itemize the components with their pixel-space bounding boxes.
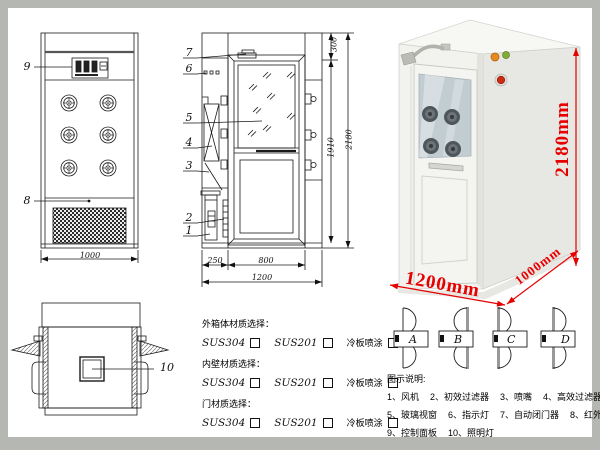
material-group-title: 外箱体材质选择： (202, 317, 412, 330)
legend-item: 7、自动闭门器 (500, 408, 559, 421)
legend: 图示说明: 1、风机 2、初效过滤器 3、喷嘴 4、高效过滤器 5、玻璃视窗 6… (387, 372, 600, 439)
material-option-label: 冷板喷涂 (347, 416, 383, 429)
photo-dim-height: 2180mm (552, 89, 574, 189)
legend-item: 3、喷嘴 (500, 390, 532, 403)
callout-9: 9 (20, 60, 34, 73)
checkbox (323, 418, 333, 428)
material-option-label: SUS304 (202, 377, 245, 389)
dim-top-300: 300 (330, 35, 339, 55)
material-option-label: 冷板喷涂 (347, 376, 383, 389)
legend-item: 10、照明灯 (448, 426, 494, 439)
callout-8: 8 (20, 194, 34, 207)
return-air-grille (53, 208, 126, 243)
callout-2: 2 (182, 211, 196, 224)
checkbox (250, 338, 260, 348)
material-group-title: 门材质选择： (202, 397, 412, 410)
material-option-label: SUS201 (274, 337, 317, 349)
material-options-row: SUS304 SUS201 冷板喷涂 (202, 416, 412, 429)
material-option-label: SUS201 (274, 377, 317, 389)
door-section (228, 50, 305, 245)
legend-row: 9、控制面板 10、照明灯 (387, 426, 600, 439)
door-option-a-icon: A (388, 307, 434, 369)
legend-item: 9、控制面板 (387, 426, 437, 439)
callout-10: 10 (156, 361, 178, 374)
door-swing-right (140, 341, 168, 356)
dim-250: 250 (202, 256, 228, 265)
dim-front-width: 1000 (70, 251, 110, 260)
checkbox (250, 378, 260, 388)
svg-text:A: A (408, 333, 417, 346)
door-closer (238, 53, 256, 58)
checkbox (250, 418, 260, 428)
orange-indicator-light (491, 53, 499, 61)
door-option-d-icon: D (539, 307, 585, 369)
material-options-row: SUS304 SUS201 冷板喷涂 (202, 376, 412, 389)
material-option-label: 冷板喷涂 (347, 336, 383, 349)
callout-1: 1 (182, 224, 196, 237)
dim-door-height: 1910 (327, 128, 336, 168)
dim-1200: 1200 (230, 273, 294, 282)
legend-item: 6、指示灯 (448, 408, 489, 421)
svg-text:C: C (507, 333, 516, 346)
material-options-row: SUS304 SUS201 冷板喷涂 (202, 336, 412, 349)
dim-total-height: 2180 (345, 120, 354, 160)
legend-item: 8、红外线感应器 (570, 408, 600, 421)
dim-800: 800 (240, 256, 292, 265)
legend-item: 2、初效过滤器 (430, 390, 489, 403)
callout-6: 6 (182, 62, 196, 75)
service-column (201, 71, 228, 240)
callout-3: 3 (182, 159, 196, 172)
material-option-label: SUS304 (202, 417, 245, 429)
front-nozzles (61, 95, 116, 176)
door-option-c-icon: C (487, 307, 533, 369)
green-indicator-light (503, 52, 510, 59)
front-view-drawing (34, 33, 138, 263)
top-view-drawing (12, 303, 168, 415)
material-option-label: SUS201 (274, 417, 317, 429)
legend-item: 5、玻璃视窗 (387, 408, 437, 421)
legend-title: 图示说明: (387, 372, 600, 385)
svg-text:B: B (453, 333, 462, 346)
checkbox (323, 378, 333, 388)
callout-4: 4 (182, 136, 196, 149)
material-option-label: SUS304 (202, 337, 245, 349)
checkbox (323, 338, 333, 348)
callout-5: 5 (182, 111, 196, 124)
control-panel (72, 58, 108, 78)
legend-item: 1、风机 (387, 390, 419, 403)
svg-text:D: D (560, 333, 570, 346)
callout-7: 7 (182, 46, 196, 59)
emergency-button (497, 76, 505, 84)
materials-selection: 外箱体材质选择： SUS304 SUS201 冷板喷涂 内壁材质选择： SUS3… (202, 317, 412, 429)
door-swing-left (12, 341, 40, 356)
datasheet-page: 1000 9 8 7 6 5 4 3 2 1 300 1910 2180 250… (0, 0, 600, 450)
legend-item: 4、高效过滤器 (543, 390, 600, 403)
legend-row: 5、玻璃视窗 6、指示灯 7、自动闭门器 8、红外线感应器 (387, 408, 600, 421)
material-group-title: 内壁材质选择： (202, 357, 412, 370)
front-edge-shade (477, 53, 483, 289)
legend-row: 1、风机 2、初效过滤器 3、喷嘴 4、高效过滤器 (387, 390, 600, 403)
door-option-b-icon: B (437, 307, 483, 369)
